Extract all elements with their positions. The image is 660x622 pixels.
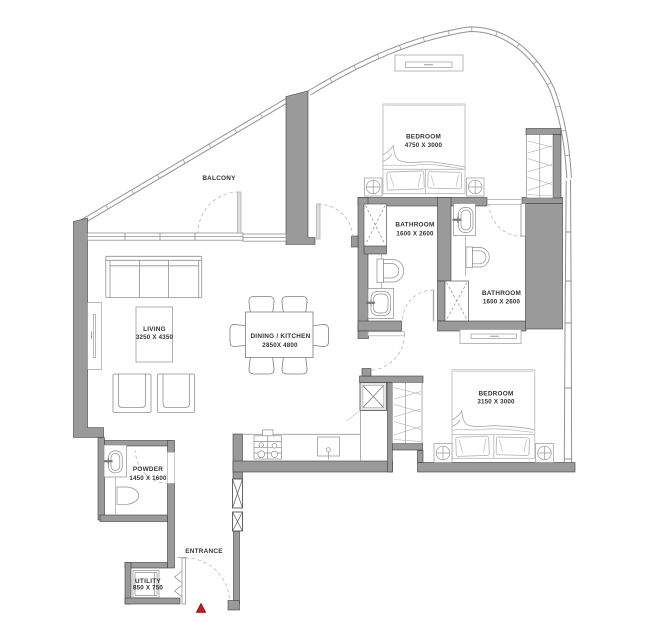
svg-text:BALCONY: BALCONY [202,175,236,182]
svg-text:1600 X 2600: 1600 X 2600 [483,299,521,306]
svg-text:2850X 4800: 2850X 4800 [262,342,298,349]
svg-text:1450 X 1600: 1450 X 1600 [129,475,167,482]
svg-text:1600 X 2600: 1600 X 2600 [396,230,434,237]
svg-text:ENTRANCE: ENTRANCE [185,548,223,555]
svg-text:4750 X 3000: 4750 X 3000 [405,142,443,149]
svg-text:DINING / KITCHEN: DINING / KITCHEN [250,333,310,340]
svg-text:3250 X 4350: 3250 X 4350 [136,334,174,341]
svg-text:POWDER: POWDER [133,466,163,473]
svg-text:850 X 750: 850 X 750 [133,585,163,592]
svg-text:BATHROOM: BATHROOM [482,290,521,297]
svg-text:3150 X 3000: 3150 X 3000 [477,399,515,406]
svg-text:BATHROOM: BATHROOM [395,222,434,229]
svg-text:BEDROOM: BEDROOM [406,134,441,141]
svg-text:BEDROOM: BEDROOM [478,391,513,398]
svg-text:LIVING: LIVING [143,326,166,333]
